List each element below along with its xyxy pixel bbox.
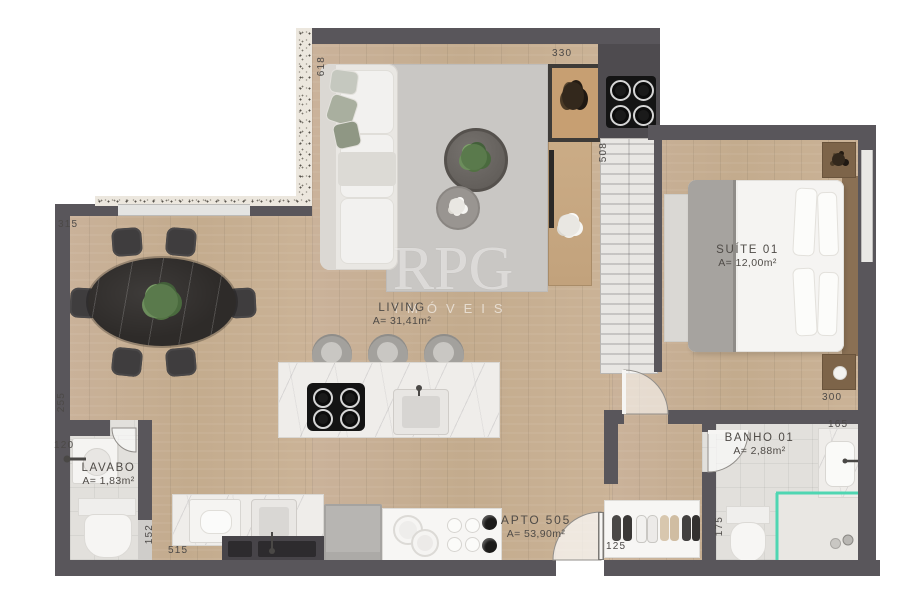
dimension-living-side: 618	[316, 56, 327, 76]
dining-centerpiece	[144, 284, 178, 318]
cabinet-recess	[228, 541, 252, 557]
living-name: LIVING	[338, 301, 466, 315]
island-sink-basin	[402, 396, 440, 428]
island-cooktop	[307, 383, 365, 431]
suite-area: A= 12,00m²	[685, 257, 810, 270]
burner	[610, 105, 631, 126]
bed-pillow	[817, 192, 839, 257]
unit-number: APTO 505	[477, 513, 595, 528]
living-area: A= 31,41m²	[338, 315, 466, 328]
shoe	[612, 515, 621, 541]
shoe	[647, 515, 658, 543]
coffee-table-large	[444, 128, 508, 192]
dimension-lavabo-width: 120	[54, 440, 74, 451]
shower-floor	[778, 494, 858, 560]
tv	[549, 150, 554, 228]
dimension-top-opening: 330	[552, 48, 572, 59]
sofa-pillow	[332, 120, 363, 151]
lavabo-name: LAVABO	[66, 461, 151, 475]
bed-pillow	[792, 267, 818, 336]
wall-bottom-left	[55, 560, 556, 576]
banho-toilet-bowl	[730, 522, 766, 562]
shoe	[636, 515, 647, 543]
dimension-closet-depth: 508	[598, 142, 609, 162]
lavabo-area: A= 1,83m²	[66, 475, 151, 488]
dimension-lavabo-depth: 152	[144, 524, 155, 544]
dining-table	[88, 258, 236, 346]
coffee-table-flowers	[449, 198, 465, 214]
suite-name: SUÍTE 01	[685, 243, 810, 257]
shoe	[660, 515, 669, 541]
console-flowers	[558, 214, 580, 236]
dimension-suite-width: 300	[822, 392, 842, 403]
dimension-banho-depth: 175	[714, 516, 725, 536]
nightstand-plant	[832, 153, 845, 166]
dimension-kitchen-width: 515	[168, 545, 188, 556]
coffee-table-small	[436, 186, 480, 230]
wall-suite-top	[648, 125, 858, 140]
shoe	[692, 515, 700, 541]
dimension-dining-side: 255	[56, 392, 67, 412]
plate	[411, 529, 439, 557]
cup	[447, 518, 462, 533]
wall-planter-frame	[548, 64, 604, 142]
sofa	[320, 64, 398, 270]
counter-sink-basin	[259, 507, 289, 537]
tv-console	[548, 138, 592, 286]
label-living: LIVING A= 31,41m²	[338, 301, 466, 329]
dining-chair	[111, 347, 144, 378]
window-dining	[118, 204, 250, 216]
label-suite: SUÍTE 01 A= 12,00m²	[685, 243, 810, 271]
lavabo-toilet-bowl	[84, 514, 132, 558]
banho-counter	[818, 428, 860, 498]
dining-chair	[165, 347, 197, 378]
coffee-table-plant	[461, 144, 487, 170]
burner	[610, 80, 631, 101]
exterior-band-left	[296, 28, 312, 206]
sofa-pillow	[328, 68, 359, 96]
wall-wardrobe-side	[654, 138, 662, 372]
label-banho: BANHO 01 A= 2,88m²	[712, 431, 807, 459]
label-unit: APTO 505 A= 53,90m²	[477, 513, 595, 541]
shoe	[682, 515, 691, 541]
dining-chair	[165, 227, 197, 258]
dimension-banho-counter: 165	[828, 419, 848, 430]
burner	[313, 388, 333, 408]
towel-roll	[200, 510, 232, 534]
nightstand	[822, 354, 856, 390]
dining-chair	[111, 227, 143, 257]
wardrobe	[600, 138, 658, 374]
sofa-throw	[338, 152, 396, 186]
bed-pillow	[817, 272, 839, 337]
shower-drain	[830, 538, 841, 549]
nightstand-lamp	[833, 366, 847, 380]
cup	[447, 537, 462, 552]
wall-left	[55, 204, 70, 576]
sofa-cushion	[340, 198, 394, 264]
floor-lavabo-door	[110, 420, 138, 436]
banho-area: A= 2,88m²	[712, 445, 807, 458]
burner	[340, 409, 360, 429]
wall-entry-stub	[604, 424, 618, 484]
kitchen-appliance-gray	[324, 504, 382, 562]
wall-planter-plant	[562, 82, 584, 110]
window-suite	[861, 150, 873, 262]
island-sink	[393, 389, 449, 435]
banho-name: BANHO 01	[712, 431, 807, 445]
burner	[340, 388, 360, 408]
wall-suite-bottom-a	[604, 410, 624, 424]
floorplan-canvas: RPG IMÓVEIS LIVING A= 31,41m² SUÍTE 01 A…	[0, 0, 900, 603]
gourmet-counter	[598, 42, 660, 138]
wall-lavabo-top	[70, 420, 110, 436]
burner	[313, 409, 333, 429]
dimension-closet-hall: 125	[606, 541, 626, 552]
wall-bottom-right	[604, 560, 880, 576]
dimension-dining-width: 315	[58, 219, 78, 230]
bed-headboard	[842, 176, 858, 356]
cabinet-recess	[258, 541, 316, 557]
shoe	[670, 515, 679, 541]
label-lavabo: LAVABO A= 1,83m²	[66, 461, 151, 489]
burner	[633, 105, 654, 126]
shoe	[623, 515, 632, 541]
cooktop-top	[606, 76, 656, 128]
banho-basin	[825, 441, 855, 487]
wall-top	[300, 28, 660, 44]
unit-area: A= 53,90m²	[477, 528, 595, 541]
nightstand	[822, 142, 856, 178]
burner	[633, 80, 654, 101]
kitchen-island	[278, 362, 500, 438]
